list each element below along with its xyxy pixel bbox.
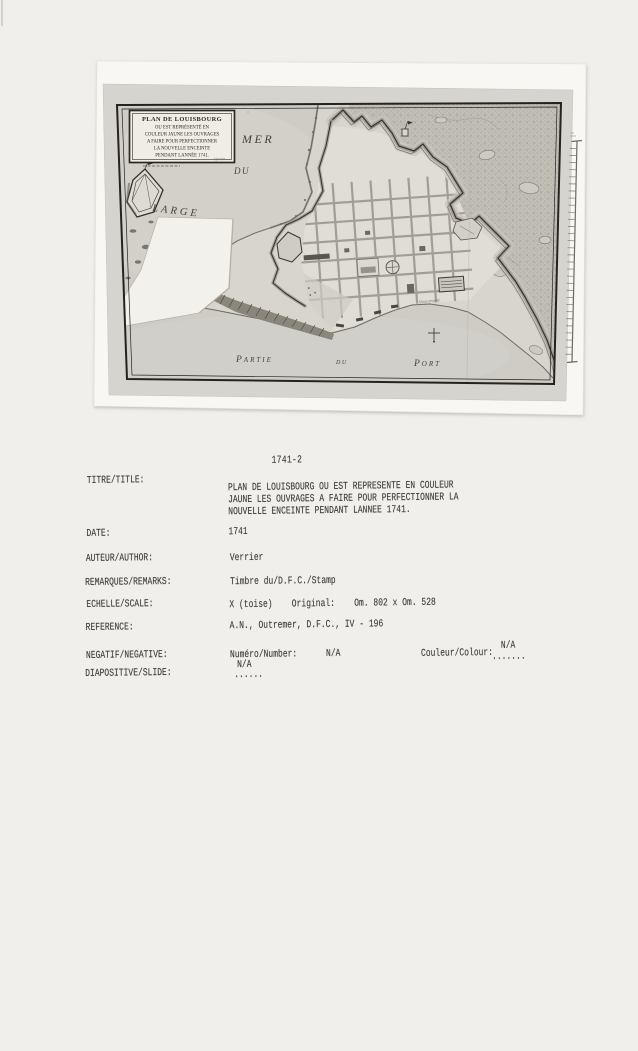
catalog-entry: 1741-2 TITRE/TITLE:PLAN DE LOUISBOURG OU… (0, 0, 638, 1051)
catalog-label: TITRE/TITLE: (87, 474, 145, 488)
catalog-label: REMARQUES/REMARKS: (85, 576, 172, 590)
catalog-value: Verrier (230, 552, 264, 566)
catalog-value: 1741 (228, 526, 247, 539)
catalog-value: Timbre du/D.F.C./Stamp (230, 575, 336, 589)
catalog-label: DATE: (86, 528, 110, 541)
catalog-value: A.N., Outremer, D.F.C., IV - 196 (230, 618, 384, 633)
catalog-number: 1741-2 (272, 454, 303, 468)
scanned-archive-page: { "page": { "background_color": "#f0efec… (0, 0, 638, 1050)
catalog-label: REFERENCE: (86, 621, 134, 635)
catalog-slide-dots: ...... (234, 669, 263, 683)
catalog-label: ECHELLE/SCALE: (86, 598, 153, 612)
catalog-colour-value: N/A (501, 640, 516, 653)
catalog-label: DIAPOSITIVE/SLIDE: (85, 667, 172, 681)
catalog-label: NEGATIF/NEGATIVE: (86, 649, 168, 663)
catalog-label: AUTEUR/AUTHOR: (86, 552, 153, 566)
catalog-value: X (toise) Original: Om. 802 x Om. 528 (229, 597, 436, 613)
catalog-colour-label: Couleur/Colour: (421, 647, 493, 661)
catalog-value: NOUVELLE ENCEINTE PENDANT LANNEE 1741. (228, 504, 411, 519)
catalog-rows: TITRE/TITLE:PLAN DE LOUISBOURG OU EST RE… (0, 0, 631, 1)
